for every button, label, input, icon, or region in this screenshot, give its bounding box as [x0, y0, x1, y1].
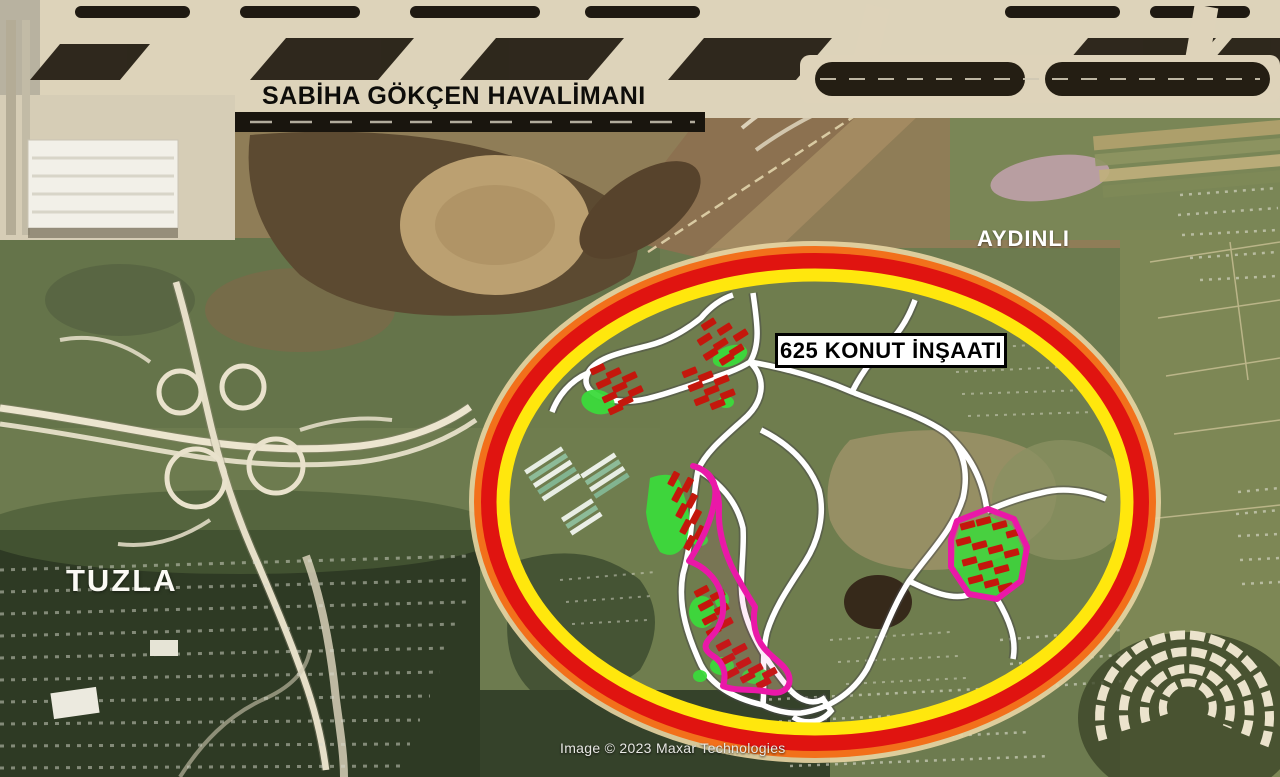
landmark-building [150, 640, 178, 656]
satellite-map: SABİHA GÖKÇEN HAVALİMANI AYDINLI TUZLA 6… [0, 0, 1280, 777]
label-aydinli: AYDINLI [977, 228, 1070, 250]
annotation-box: 625 KONUT İNŞAATI [775, 333, 1007, 368]
label-airport: SABİHA GÖKÇEN HAVALİMANI [262, 84, 646, 109]
imagery-attribution: Image © 2023 Maxar Technologies [560, 740, 786, 756]
map-canvas [0, 0, 1280, 777]
label-tuzla: TUZLA [66, 565, 178, 596]
taxiway-islands [75, 6, 1250, 18]
